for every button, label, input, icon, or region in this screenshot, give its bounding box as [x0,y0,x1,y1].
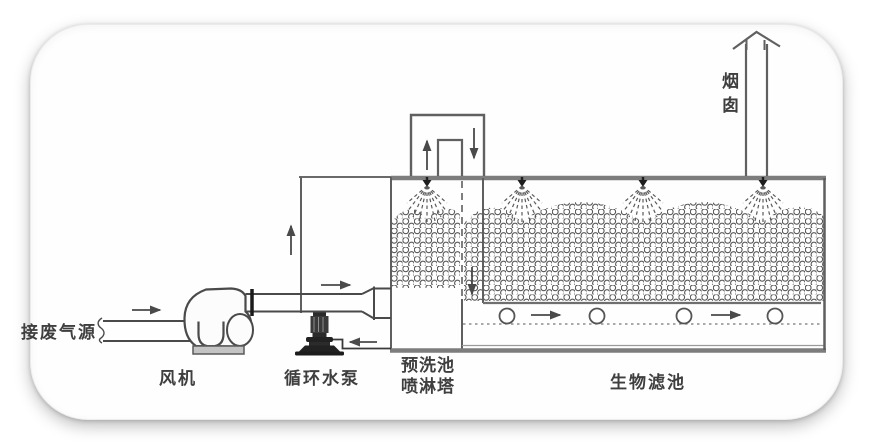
waste-gas-inlet-pipe [98,318,197,343]
spray-nozzle-icon [623,177,663,223]
spray-nozzle-icon [743,177,783,223]
fan-blower [184,289,253,355]
chimney-label: 烟囱 [716,72,741,120]
plenum-holes [500,309,783,324]
prewash-packing-bed [392,209,460,288]
prewash-spray-tower-label: 预洗池 喷淋塔 [394,356,462,398]
biofilter-label: 生物滤池 [610,368,686,393]
spray-nozzle-icon [502,177,542,223]
biofilter-packing-bed [464,202,824,301]
crossover-u-duct [411,115,484,176]
chimney-cap-icon [733,32,780,49]
prewash-label-line2: 喷淋塔 [394,377,462,398]
prewash-label-line1: 预洗池 [394,356,462,377]
circulating-pump-label: 循环水泵 [284,364,360,389]
fan-base [193,346,244,354]
waste-gas-source-label: 接废气源 [21,318,97,343]
spray-nozzle-icon [407,177,447,223]
fan-label: 风机 [159,364,197,389]
